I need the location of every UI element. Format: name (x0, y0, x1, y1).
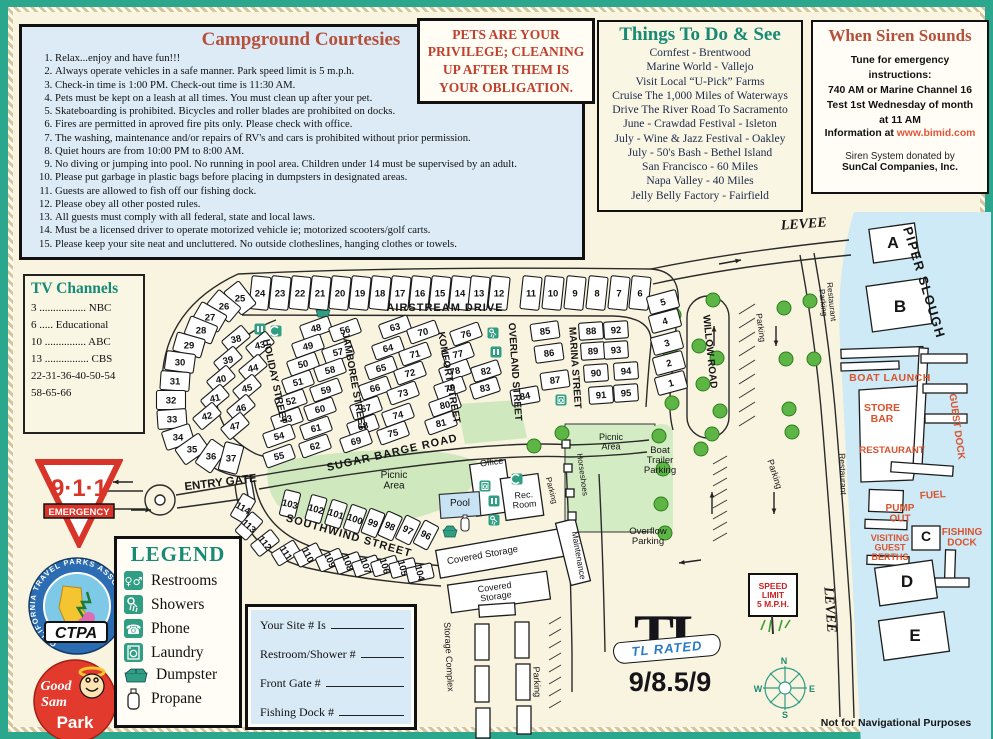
site-number: 83 (479, 382, 491, 395)
site-88: 88 (578, 322, 603, 341)
list-item: Skateboarding is prohibited. Bicycles an… (55, 105, 574, 118)
pets-notice: PETS ARE YOUR PRIVILEGE; CLEANING UP AFT… (417, 18, 595, 104)
site-31: 31 (160, 371, 190, 392)
map-label: C (921, 528, 931, 544)
list-item: Please put garbage in plastic bags befor… (55, 171, 574, 184)
tv-title: TV Channels (31, 280, 137, 298)
tree (807, 352, 821, 366)
site-21: 21 (309, 276, 331, 311)
list-item: 3 ................. NBC (31, 300, 137, 317)
site-number: 82 (480, 365, 492, 378)
site-number: 42 (201, 410, 214, 423)
map-label: VISITINGGUESTBERTHS (871, 533, 910, 562)
form-blank-line (326, 675, 404, 687)
tree (706, 293, 720, 307)
map-label: PicnicArea (381, 470, 408, 492)
site-number: 32 (166, 395, 177, 406)
site-19: 19 (349, 276, 371, 311)
shower-icon (489, 515, 500, 526)
list-item: Guests are allowed to fish off our fishi… (55, 185, 574, 198)
site-number: 21 (315, 288, 326, 299)
site-86: 86 (534, 343, 564, 364)
list-item: 13 ................ CBS (31, 351, 137, 368)
list-item: at 11 AM (819, 113, 981, 128)
form-blank-line (331, 617, 404, 629)
propane-icon (123, 687, 144, 711)
restrooms-icon: ♀♂ (123, 570, 144, 591)
911-number: 9·1·1 (51, 475, 107, 502)
site-number: 69 (350, 435, 363, 448)
ctpa-name: CTPA (55, 625, 97, 642)
trailer-life-rating-logo: TL TL RATED 9/8.5/9 (611, 608, 729, 720)
site-65: 65 (364, 356, 397, 380)
site-60: 60 (303, 397, 336, 421)
goodsam-good: Good (40, 679, 72, 694)
site-number: 66 (369, 382, 382, 395)
map-label: Restaurant (837, 453, 848, 496)
map-label: BOAT LAUNCH (849, 372, 931, 384)
tree (782, 402, 796, 416)
siren-donated: Siren System donated by (819, 151, 981, 162)
tv-list: 3 ................. NBC6 ..... Education… (31, 300, 137, 402)
site-7: 7 (608, 276, 630, 311)
site-number: 34 (173, 432, 184, 443)
form-row: Restroom/Shower # (260, 646, 404, 662)
siren-lines: Tune for emergency instructions:740 AM o… (819, 53, 981, 128)
legend-row: Showers (123, 594, 233, 615)
list-item: Visit Local “U-Pick” Farms (603, 75, 797, 89)
list-item: San Francisco - 60 Miles (603, 160, 797, 174)
site-number: 89 (587, 346, 598, 358)
list-item: Please keep your site neat and unclutter… (55, 238, 574, 251)
tree (803, 294, 817, 308)
tree (652, 429, 666, 443)
list-item: Napa Valley - 40 Miles (603, 174, 797, 188)
pets-text: PETS ARE YOUR PRIVILEGE; CLEANING UP AFT… (420, 24, 592, 98)
list-item: Fires are permitted in aproved fire pits… (55, 118, 574, 131)
siren-info-link: www.bimid.com (897, 128, 976, 139)
list-item: Cornfest - Brentwood (603, 46, 797, 60)
legend-label: Laundry (151, 644, 204, 662)
laundry-icon (480, 481, 491, 492)
list-item: The washing, maintenance and/or repairs … (55, 132, 574, 145)
list-item: July - Wine & Jazz Festival - Oakley (603, 132, 797, 146)
site-number: 86 (543, 348, 555, 360)
siren-panel: When Siren Sounds Tune for emergency ins… (811, 20, 989, 194)
site-22: 22 (289, 276, 311, 311)
site-number: 88 (585, 326, 596, 338)
site-number: 91 (595, 390, 607, 402)
site-number: 49 (302, 340, 315, 353)
legend-label: Dumpster (156, 666, 217, 684)
map-label: W (754, 684, 763, 694)
site-number: 70 (417, 326, 430, 339)
tree (785, 425, 799, 439)
site-form-panel: Your Site # Is Restroom/Shower # Front G… (245, 604, 417, 730)
list-item: 6 ..... Educational (31, 317, 137, 334)
site-number: 23 (275, 288, 286, 299)
legend-title: LEGEND (123, 542, 233, 567)
map-label: S (782, 710, 788, 720)
tree (694, 442, 708, 456)
site-number: 38 (230, 333, 243, 346)
ctpa-logo: CALIFORNIA TRAVEL PARKS ASSOCIATION CTPA (27, 556, 127, 661)
site-number: 30 (175, 357, 186, 368)
map-label: PUMPOUT (886, 503, 915, 525)
site-95: 95 (613, 384, 638, 403)
map-label: N (781, 656, 788, 666)
map-label: PicnicArea (599, 432, 624, 451)
site-number: 85 (539, 326, 551, 338)
tree (665, 396, 679, 410)
map-label: Parking (531, 666, 543, 697)
goodsam-park: Park (57, 713, 94, 732)
form-label: Your Site # Is (260, 618, 326, 633)
form-blank-line (339, 704, 404, 716)
site-number: 47 (229, 420, 242, 433)
site-number: 19 (355, 288, 366, 299)
map-label: E (809, 684, 815, 694)
site-number: 39 (222, 354, 235, 367)
goodsam-logo: Good Sam Park (29, 658, 121, 739)
site-number: 22 (295, 288, 306, 299)
site-63: 63 (378, 315, 411, 339)
form-label: Fishing Dock # (260, 705, 334, 720)
restrooms-icon (489, 496, 500, 507)
site-47: 47 (220, 412, 250, 440)
svg-text:♀♂: ♀♂ (125, 575, 143, 588)
siren-donor: SunCal Companies, Inc. (819, 162, 981, 173)
site-number: 77 (452, 348, 465, 361)
compass-rose (763, 666, 807, 710)
site-number: 25 (235, 293, 246, 304)
site-23: 23 (269, 276, 291, 311)
map-page: 2423222120191817161514131211109876543212… (8, 7, 985, 732)
site-number: 72 (404, 367, 417, 380)
site-number: 33 (167, 414, 178, 425)
tree (705, 427, 719, 441)
tree (555, 426, 569, 440)
shower-icon (488, 328, 499, 339)
list-item: Marine World - Vallejo (603, 60, 797, 74)
things-title: Things To Do & See (603, 24, 797, 46)
phone-icon (270, 326, 281, 337)
map-label: FUEL (919, 489, 946, 502)
site-30: 30 (164, 351, 195, 374)
list-item: Drive The River Road To Sacramento (603, 103, 797, 117)
site-94: 94 (613, 362, 638, 381)
form-label: Restroom/Shower # (260, 647, 356, 662)
things-panel: Things To Do & See Cornfest - BrentwoodM… (597, 20, 803, 212)
legend-row: ☎ Phone (123, 618, 233, 639)
tree (713, 404, 727, 418)
list-item: June - Crawdad Festival - Isleton (603, 117, 797, 131)
showers-icon (123, 594, 144, 615)
site-number: 6 (637, 288, 642, 299)
tree (779, 352, 793, 366)
site-number: 59 (320, 384, 333, 397)
site-number: 24 (255, 288, 266, 299)
form-row: Front Gate # (260, 675, 404, 691)
tree (777, 301, 791, 315)
tv-panel: TV Channels 3 ................. NBC6 ...… (23, 274, 145, 434)
legend-row: ♀♂ Restrooms (123, 570, 233, 591)
map-label: Parking (765, 458, 784, 490)
map-label: D (901, 572, 913, 591)
map-label: Not for Navigational Purposes (821, 717, 972, 729)
site-72: 72 (393, 361, 426, 385)
site-number: 60 (314, 403, 327, 416)
list-item: Tune for emergency instructions: (819, 53, 981, 83)
form-label: Front Gate # (260, 676, 321, 691)
map-label: Parking (544, 476, 559, 504)
list-item: No diving or jumping into pool. No runni… (55, 158, 574, 171)
site-number: 28 (196, 325, 207, 336)
form-row: Your Site # Is (260, 617, 404, 633)
site-number: 9 (572, 288, 577, 299)
list-item: Please obey all other posted rules. (55, 198, 574, 211)
site-number: 76 (460, 328, 473, 341)
site-number: 90 (590, 368, 601, 380)
list-item: All guests must comply with all federal,… (55, 211, 574, 224)
site-90: 90 (583, 364, 608, 383)
site-91: 91 (588, 386, 613, 405)
legend-label: Showers (151, 596, 204, 614)
map-label: OverflowParking (629, 526, 667, 547)
map-label: LEVEE (779, 215, 827, 233)
laundry-icon (556, 395, 567, 406)
tree (654, 497, 668, 511)
list-item: Jelly Belly Factory - Fairfield (603, 189, 797, 203)
site-75: 75 (376, 421, 409, 445)
site-number: 7 (616, 288, 621, 299)
site-70: 70 (406, 320, 439, 344)
emergency-911-logo: 9·1·1 EMERGENCY (35, 456, 123, 553)
legend-row: Dumpster (123, 666, 233, 684)
map-label: Parking (754, 313, 768, 343)
siren-title: When Siren Sounds (819, 26, 981, 46)
dumpster-icon (443, 526, 457, 537)
form-row: Fishing Dock # (260, 704, 404, 720)
map-label: Pool (450, 498, 470, 509)
map-label: LEVEE (820, 585, 838, 633)
legend-label: Propane (151, 690, 202, 708)
legend-row: Propane (123, 687, 233, 711)
site-10: 10 (542, 276, 564, 311)
tl-rated-text: TL RATED (631, 638, 703, 659)
site-number: 10 (548, 288, 559, 299)
site-92: 92 (603, 321, 628, 340)
siren-info-prefix: Information at (825, 128, 897, 139)
site-8: 8 (586, 276, 608, 311)
site-number: 37 (226, 453, 237, 464)
site-number: 16 (415, 288, 426, 299)
site-number: 73 (397, 387, 410, 400)
911-label: EMERGENCY (48, 507, 110, 518)
list-item: Cruise The 1,000 Miles of Waterways (603, 89, 797, 103)
site-number: 35 (187, 444, 198, 455)
site-number: 15 (435, 288, 446, 299)
site-number: 14 (455, 288, 466, 299)
brochure-frame: 2423222120191817161514131211109876543212… (0, 0, 993, 739)
site-number: 58 (324, 364, 337, 377)
legend-row: Laundry (123, 642, 233, 663)
site-number: 11 (526, 288, 537, 299)
site-number: 93 (610, 345, 621, 357)
map-label: A (887, 235, 899, 252)
site-number: 87 (549, 375, 561, 387)
siren-info: Information at www.bimid.com (819, 128, 981, 139)
laundry-icon (123, 642, 144, 663)
site-number: 63 (389, 321, 402, 334)
dumpster-icon (123, 666, 149, 684)
legend-panel: LEGEND ♀♂ Restrooms Showers ☎ Phone Laun… (114, 536, 242, 728)
site-number: 8 (594, 288, 599, 299)
site-number: 18 (375, 288, 386, 299)
site-number: 26 (219, 301, 230, 312)
map-label: RESTAURANT (859, 445, 925, 456)
site-11: 11 (520, 276, 542, 311)
site-number: 13 (474, 288, 485, 299)
map-label: FISHINGDOCK (942, 527, 983, 549)
site-93: 93 (603, 341, 628, 360)
restrooms-icon (491, 347, 502, 358)
map-label: B (894, 297, 906, 316)
things-list: Cornfest - BrentwoodMarine World - Valle… (603, 46, 797, 203)
site-9: 9 (564, 276, 586, 311)
site-number: 52 (285, 395, 298, 408)
site-85: 85 (530, 321, 560, 342)
list-item: Quiet hours are from 10:00 PM to 8:00 AM… (55, 145, 574, 158)
site-number: 95 (620, 388, 632, 400)
site-number: 62 (309, 440, 322, 453)
list-item: 740 AM or Marine Channel 16 (819, 83, 981, 98)
site-number: 29 (184, 340, 195, 351)
legend-label: Phone (151, 620, 190, 638)
tl-rating-score: 9/8.5/9 (611, 667, 729, 698)
legend-label: Restrooms (151, 572, 217, 590)
site-number: 92 (610, 325, 621, 337)
list-item: 22-31-36-40-50-54 (31, 368, 137, 385)
goodsam-sam: Sam (41, 695, 67, 710)
site-73: 73 (386, 381, 419, 405)
site-number: 31 (170, 376, 181, 387)
site-32: 32 (157, 391, 186, 410)
list-item: Must be a licensed driver to operate mot… (55, 224, 574, 237)
site-89: 89 (580, 342, 605, 361)
site-number: 94 (620, 366, 632, 378)
map-label: AIRSTREAM DRIVE (386, 302, 503, 314)
site-69: 69 (339, 429, 372, 453)
list-item: 10 ............... ABC (31, 334, 137, 351)
site-number: 36 (206, 451, 217, 462)
site-number: 20 (335, 288, 346, 299)
phone-icon (511, 474, 522, 485)
list-item: 58-65-66 (31, 385, 137, 402)
site-number: 48 (310, 322, 323, 335)
map-label: Storage Complex (442, 622, 456, 692)
site-number: 50 (297, 358, 310, 371)
tree (527, 439, 541, 453)
site-20: 20 (329, 276, 351, 311)
site-number: 17 (395, 288, 406, 299)
svg-text:☎: ☎ (125, 623, 141, 638)
map-label: E (909, 626, 920, 645)
list-item: Test 1st Wednesday of month (819, 98, 981, 113)
site-87: 87 (540, 370, 570, 391)
phone-icon: ☎ (123, 618, 144, 639)
list-item: July - 50's Bash - Bethel Island (603, 146, 797, 160)
form-blank-line (361, 646, 404, 658)
site-number: 40 (215, 373, 228, 386)
site-number: 12 (494, 288, 505, 299)
